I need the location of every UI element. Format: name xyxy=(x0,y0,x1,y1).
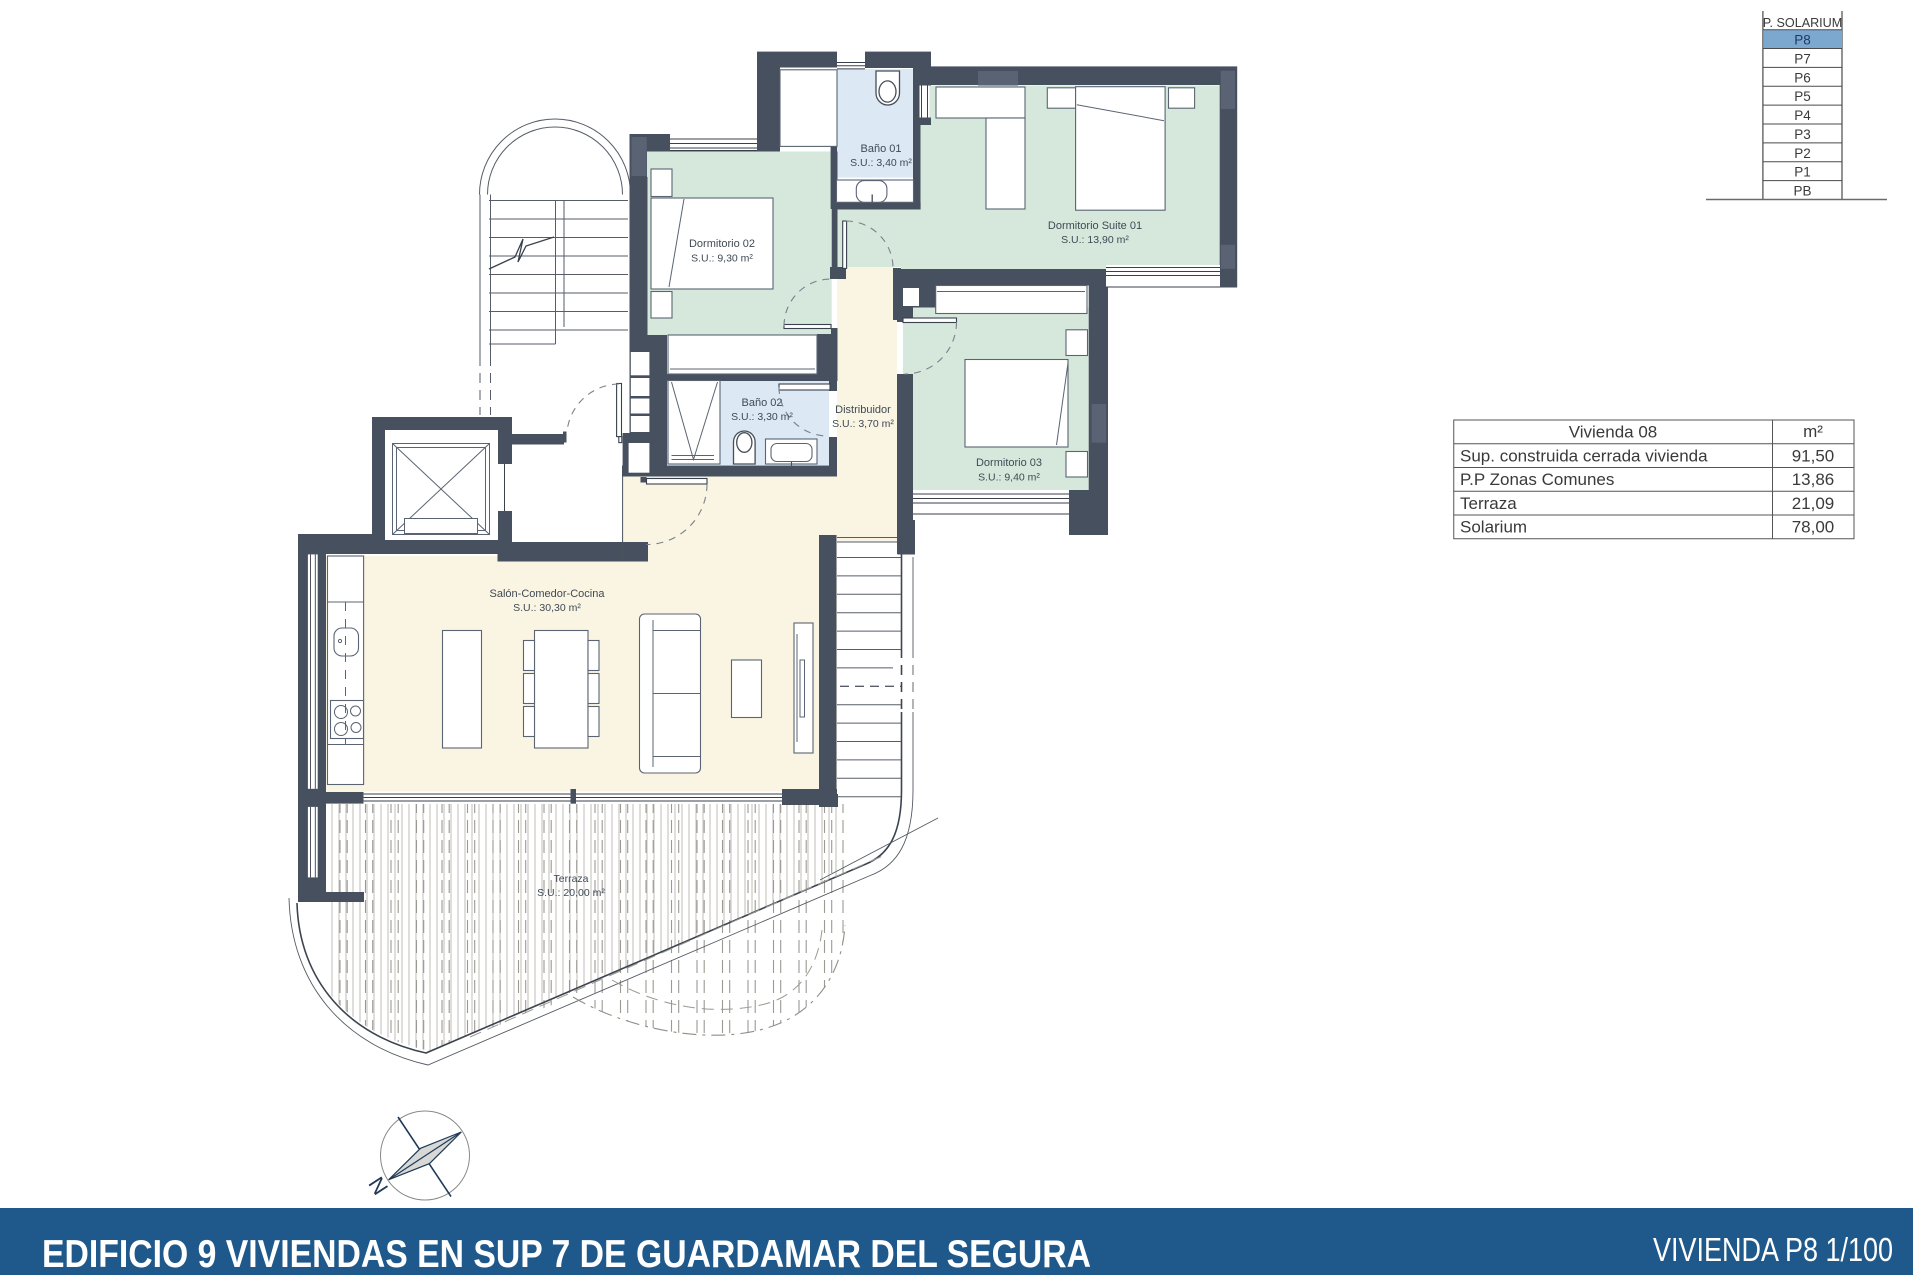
svg-text:S.U.: 3,70 m²: S.U.: 3,70 m² xyxy=(832,418,894,430)
svg-text:S.U.: 30,30 m²: S.U.: 30,30 m² xyxy=(513,602,581,614)
svg-text:91,50: 91,50 xyxy=(1792,446,1835,465)
svg-text:P3: P3 xyxy=(1794,127,1811,142)
svg-text:P5: P5 xyxy=(1794,89,1811,104)
svg-text:13,86: 13,86 xyxy=(1792,470,1835,489)
svg-text:Salón-Comedor-Cocina: Salón-Comedor-Cocina xyxy=(490,588,606,600)
svg-text:Dormitorio 02: Dormitorio 02 xyxy=(689,238,755,250)
svg-text:Terraza: Terraza xyxy=(553,873,588,885)
svg-text:P1: P1 xyxy=(1794,165,1811,180)
svg-text:Dormitorio 03: Dormitorio 03 xyxy=(976,457,1042,469)
svg-text:P7: P7 xyxy=(1794,52,1811,67)
svg-text:S.U.: 20,00 m²: S.U.: 20,00 m² xyxy=(537,887,605,899)
svg-text:Baño 02: Baño 02 xyxy=(742,397,783,409)
svg-text:m²: m² xyxy=(1803,422,1823,441)
svg-text:S.U.: 3,30 m²: S.U.: 3,30 m² xyxy=(731,411,793,423)
svg-text:S.U.: 9,40 m²: S.U.: 9,40 m² xyxy=(978,472,1040,484)
svg-text:Distribuidor: Distribuidor xyxy=(835,404,891,416)
svg-text:21,09: 21,09 xyxy=(1792,494,1835,513)
svg-text:EDIFICIO 9 VIVIENDAS EN SUP 7: EDIFICIO 9 VIVIENDAS EN SUP 7 DE GUARDAM… xyxy=(42,1233,1091,1276)
svg-text:P6: P6 xyxy=(1794,70,1811,85)
svg-text:S.U.: 9,30 m²: S.U.: 9,30 m² xyxy=(691,253,753,265)
svg-text:VIVIENDA P8 1/100: VIVIENDA P8 1/100 xyxy=(1653,1231,1893,1268)
svg-text:Sup. construida cerrada vivien: Sup. construida cerrada vivienda xyxy=(1460,446,1708,465)
svg-text:P8: P8 xyxy=(1794,33,1811,48)
svg-text:S.U.: 13,90 m²: S.U.: 13,90 m² xyxy=(1061,234,1129,246)
svg-text:Vivienda 08: Vivienda 08 xyxy=(1569,423,1658,442)
svg-text:78,00: 78,00 xyxy=(1792,518,1835,537)
svg-text:Dormitorio Suite 01: Dormitorio Suite 01 xyxy=(1048,220,1142,232)
svg-text:Terraza: Terraza xyxy=(1460,494,1517,513)
svg-text:P2: P2 xyxy=(1794,146,1811,161)
svg-text:Solarium: Solarium xyxy=(1460,518,1527,537)
svg-text:PB: PB xyxy=(1793,184,1811,199)
svg-text:P.P Zonas Comunes: P.P Zonas Comunes xyxy=(1460,470,1614,489)
svg-text:Baño 01: Baño 01 xyxy=(861,143,902,155)
svg-text:S.U.: 3,40 m²: S.U.: 3,40 m² xyxy=(850,157,912,169)
svg-text:P4: P4 xyxy=(1794,108,1811,123)
svg-text:P. SOLARIUM: P. SOLARIUM xyxy=(1763,16,1843,30)
